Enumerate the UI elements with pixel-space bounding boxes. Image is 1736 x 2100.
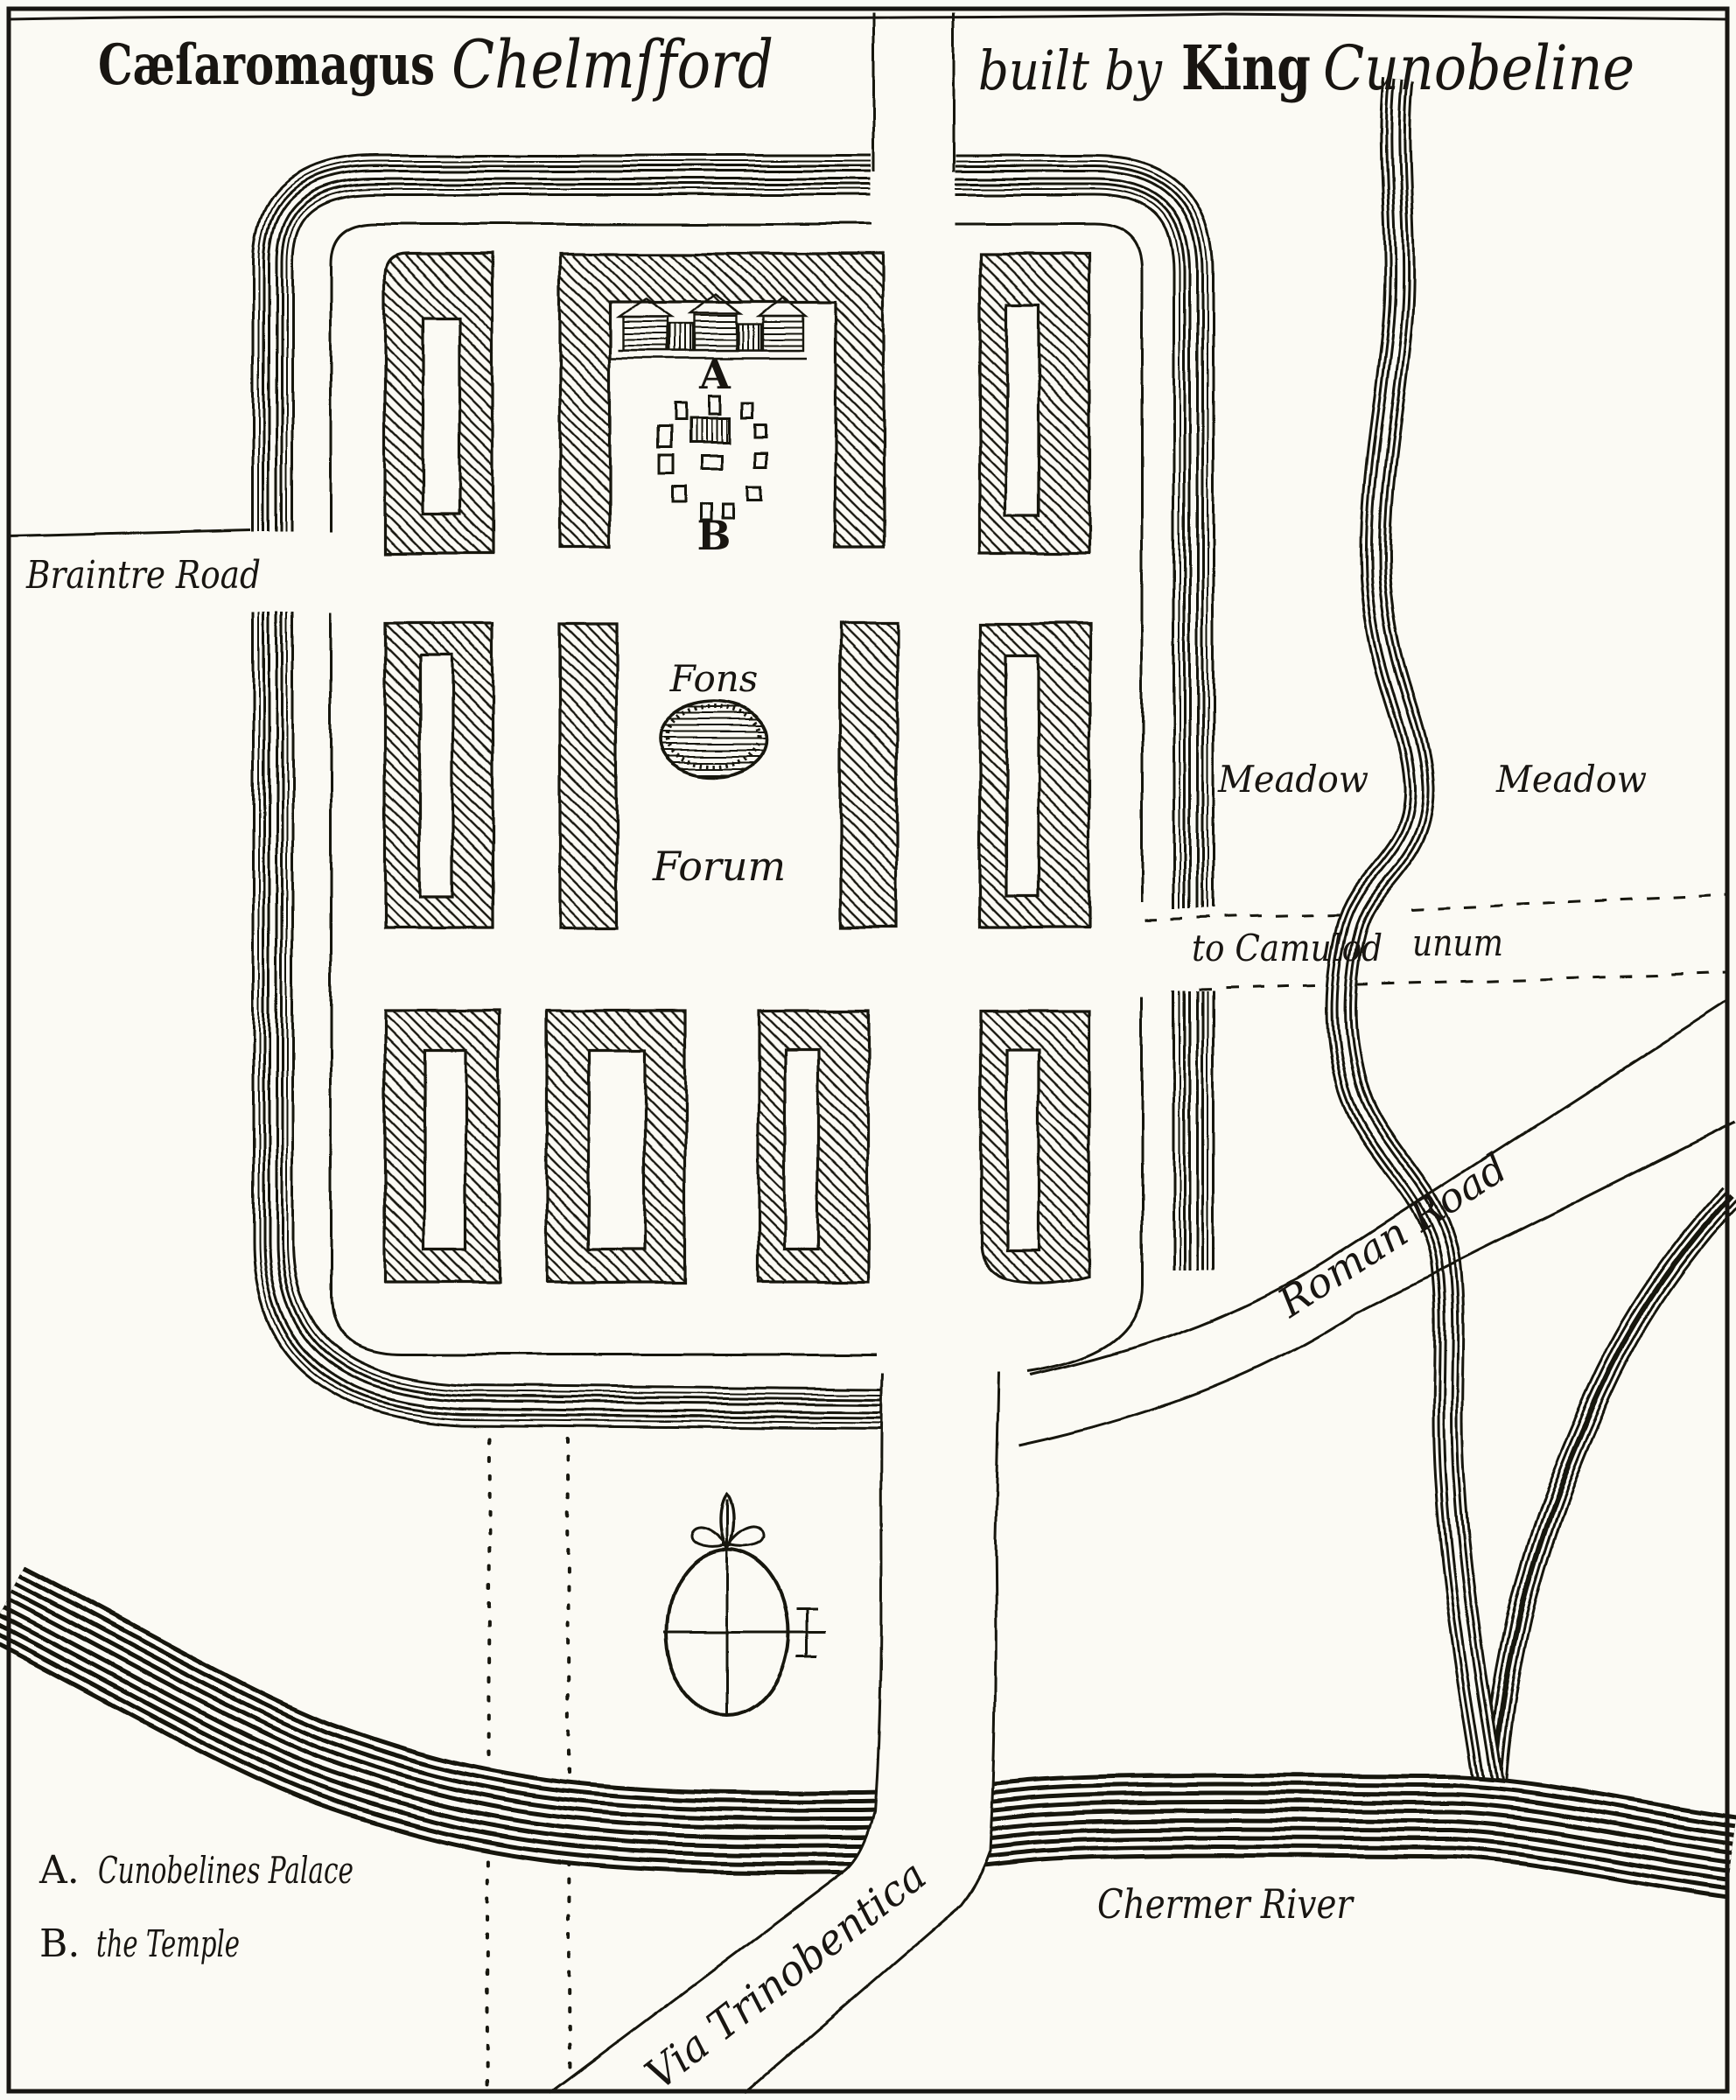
insula-block <box>980 1011 1089 1283</box>
temple-cella <box>689 418 730 443</box>
compass-rose <box>663 1493 826 1717</box>
title-roman-name: Cæſaromagus <box>98 32 435 98</box>
legend: A. Cunobelines Palace B. the Temple <box>38 1848 353 1966</box>
insula-block <box>385 624 493 927</box>
title-english-name: Chelmſford <box>451 25 773 103</box>
legend-item-b-text: the Temple <box>96 1922 240 1965</box>
antique-map-page: Cæſaromagus Chelmſford built by King Cun… <box>0 0 1736 2100</box>
insula-block <box>385 254 493 553</box>
map-canvas: Cæſaromagus Chelmſford built by King Cun… <box>0 0 1736 2100</box>
map-border-top-rule <box>9 14 1727 19</box>
insula-block <box>980 254 1089 553</box>
fons-pond <box>659 702 767 777</box>
insula-block <box>385 1011 499 1282</box>
legend-item-b-key: B. <box>39 1921 80 1966</box>
meadow-east-label: Meadow <box>1495 758 1647 801</box>
to-camulodunum-label-part1: to Camulod <box>1192 927 1382 969</box>
legend-item-a-key: A. <box>38 1848 80 1893</box>
braintre-road-label: Braintre Road <box>25 553 261 598</box>
insula-block <box>759 1011 868 1282</box>
north-gate-street <box>873 12 954 171</box>
to-camulodunum-label-part2: unum <box>1412 921 1503 964</box>
river-branch-northeast <box>1494 1197 1731 1778</box>
braintre-road-line <box>7 530 251 536</box>
marker-a-label: A <box>698 351 731 398</box>
meadow-west-label: Meadow <box>1217 758 1368 801</box>
temple-stones <box>657 396 766 521</box>
chermer-river-label: Chermer River <box>1097 1880 1355 1928</box>
marker-b-label: B <box>697 512 731 559</box>
palace-elevation <box>611 294 807 359</box>
insula-block <box>560 624 617 927</box>
insula-block <box>980 624 1089 927</box>
title-built-by-king-cunobeline: built by King Cunobeline <box>978 31 1634 104</box>
via-trinobentica-label: Via Trinobentica <box>636 1851 935 2099</box>
insula-block <box>547 1011 685 1282</box>
projected-street-dotted-lines <box>486 1438 570 2091</box>
fons-label: Fons <box>669 657 759 700</box>
legend-item-a-text: Cunobelines Palace <box>98 1849 353 1892</box>
insula-block <box>840 624 897 927</box>
forum-label: Forum <box>652 843 786 890</box>
